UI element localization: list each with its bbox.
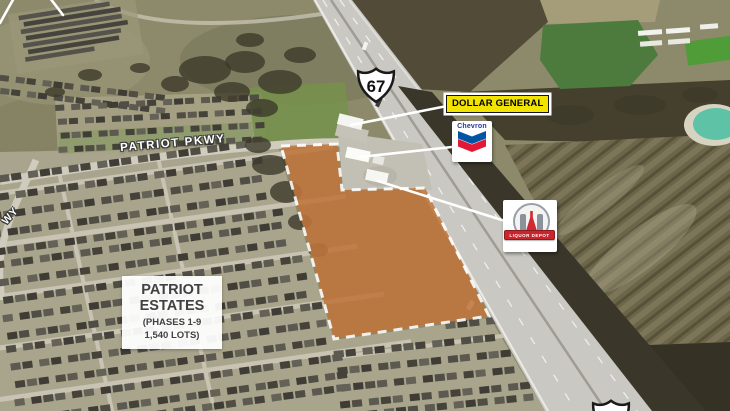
chevron-logo-icon: Chevron — [452, 121, 492, 162]
chevron-wordmark: Chevron — [457, 123, 487, 130]
development-detail-line2: 1,540 LOTS) — [124, 330, 220, 342]
dollar-general-label: DOLLAR GENERAL — [446, 95, 549, 113]
bottle-icon — [520, 214, 526, 231]
development-detail-line1: (PHASES 1-9 — [124, 317, 220, 329]
us-67-shield-number: 67 — [367, 77, 386, 96]
flask-icon — [526, 211, 537, 231]
aerial-map-screenshot: PATRIOT PKWY WY 67 DOLLAR GENERAL Chevro… — [0, 0, 730, 411]
us-67-shield-bottom-icon — [590, 396, 632, 411]
liquor-depot-ribbon: LIQUOR DEPOT — [504, 230, 555, 240]
development-name-line1: PATRIOT — [124, 282, 220, 298]
liquor-depot-logo-icon: LIQUOR DEPOT — [503, 200, 557, 252]
aerial-map-canvas — [0, 0, 730, 411]
development-name-line2: ESTATES — [124, 298, 220, 314]
us-67-shield-icon: 67 — [355, 64, 397, 104]
bottle-icon — [537, 214, 543, 231]
patriot-estates-box: PATRIOT ESTATES (PHASES 1-9 1,540 LOTS) — [122, 276, 222, 349]
